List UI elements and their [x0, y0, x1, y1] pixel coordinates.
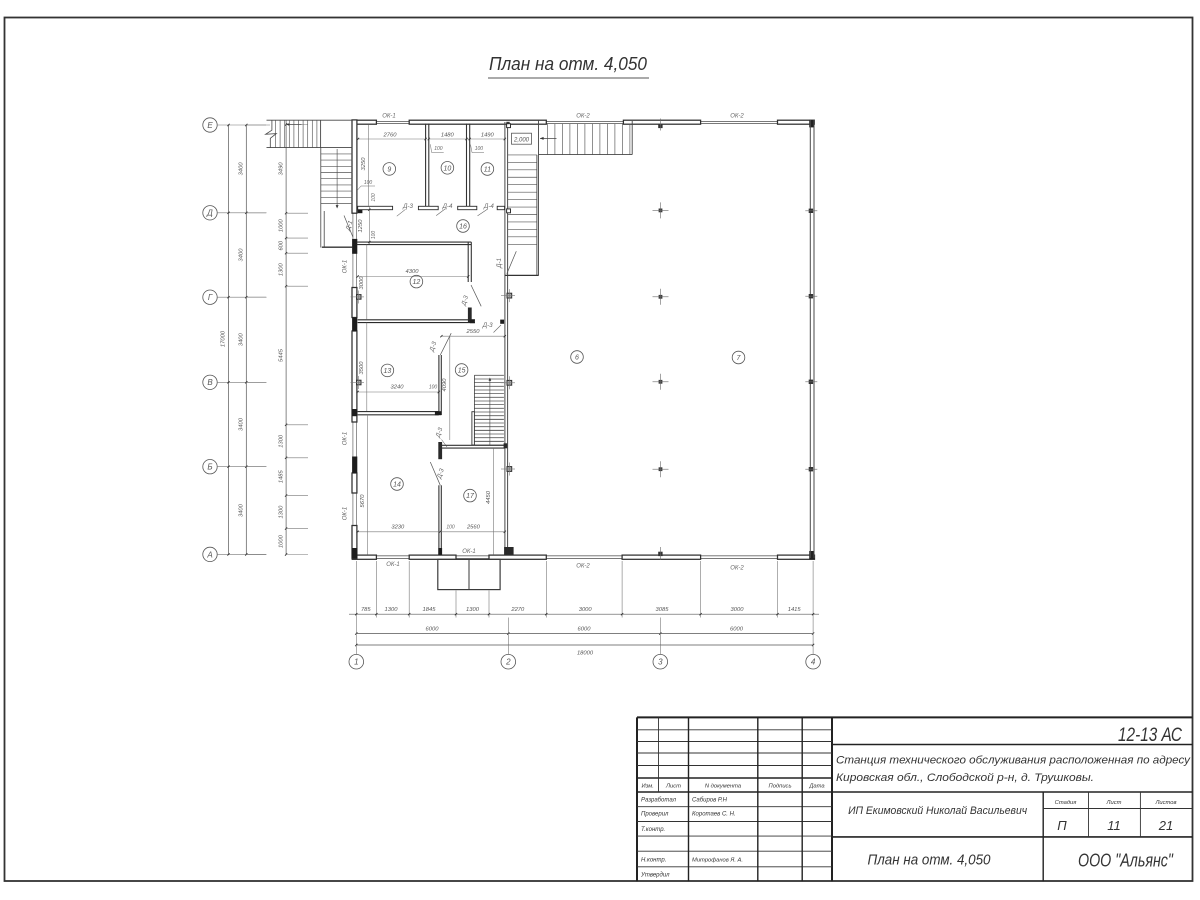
svg-text:ООО "Альянс": ООО "Альянс" [1078, 851, 1174, 871]
svg-text:12: 12 [413, 279, 421, 286]
svg-text:Стадия: Стадия [1055, 800, 1077, 806]
svg-text:1490: 1490 [481, 133, 495, 139]
svg-text:5445: 5445 [278, 348, 284, 362]
svg-text:Кировская обл., Слободской р-н: Кировская обл., Слободской р-н, д. Трушк… [836, 772, 1094, 784]
svg-text:6: 6 [575, 355, 579, 362]
svg-text:100: 100 [364, 180, 373, 186]
svg-text:Н.контр.: Н.контр. [641, 858, 666, 864]
svg-text:4300: 4300 [406, 269, 420, 275]
svg-text:1300: 1300 [278, 262, 284, 276]
svg-text:Б: Б [207, 463, 212, 472]
svg-text:18000: 18000 [577, 651, 594, 657]
svg-text:1415: 1415 [788, 607, 802, 613]
svg-text:1300: 1300 [385, 607, 399, 613]
svg-text:100: 100 [434, 146, 443, 152]
svg-text:3490: 3490 [278, 162, 284, 176]
svg-text:3000: 3000 [731, 607, 745, 613]
svg-text:3400: 3400 [239, 162, 245, 176]
svg-text:Д-1: Д-1 [496, 258, 503, 269]
svg-text:Изм.: Изм. [642, 784, 654, 790]
svg-text:Г: Г [208, 293, 213, 302]
svg-text:100: 100 [446, 525, 455, 531]
svg-text:3: 3 [658, 658, 663, 667]
svg-text:Т.контр.: Т.контр. [641, 827, 665, 833]
svg-text:ОК-2: ОК-2 [576, 564, 590, 570]
svg-text:11: 11 [1107, 818, 1121, 833]
svg-text:1485: 1485 [278, 469, 284, 483]
svg-text:100: 100 [371, 193, 377, 202]
svg-text:1000: 1000 [278, 534, 284, 548]
svg-text:12-13 АС: 12-13 АС [1118, 725, 1182, 746]
svg-text:ОК-1: ОК-1 [342, 260, 348, 274]
svg-text:Листов: Листов [1154, 800, 1176, 806]
svg-text:100: 100 [429, 385, 438, 391]
svg-text:1300: 1300 [278, 434, 284, 448]
svg-text:Разработал: Разработал [641, 797, 677, 803]
svg-text:Проверил: Проверил [641, 811, 669, 817]
svg-text:Д-4: Д-4 [442, 203, 453, 210]
svg-text:3400: 3400 [239, 503, 245, 517]
svg-text:Утвердил: Утвердил [640, 872, 670, 878]
svg-text:15: 15 [458, 368, 466, 375]
svg-text:3230: 3230 [391, 525, 405, 531]
svg-text:ОК-1: ОК-1 [342, 432, 348, 446]
svg-text:Е: Е [207, 121, 213, 130]
svg-text:N документа: N документа [705, 784, 742, 790]
svg-text:6000: 6000 [578, 626, 592, 632]
svg-text:1480: 1480 [441, 133, 455, 139]
svg-text:Д: Д [206, 209, 213, 218]
svg-text:14: 14 [393, 482, 401, 489]
svg-text:3240: 3240 [391, 385, 405, 391]
svg-text:1: 1 [354, 658, 358, 667]
svg-text:4450: 4450 [486, 490, 492, 504]
svg-text:11: 11 [484, 167, 491, 174]
svg-text:Митрофанов Я. А.: Митрофанов Я. А. [692, 858, 743, 864]
svg-text:5670: 5670 [360, 494, 366, 508]
svg-text:3500: 3500 [359, 361, 365, 375]
svg-text:В: В [207, 378, 213, 387]
svg-text:3400: 3400 [239, 248, 245, 262]
svg-text:3400: 3400 [239, 332, 245, 346]
svg-text:3000: 3000 [579, 607, 593, 613]
svg-text:2560: 2560 [466, 525, 481, 531]
svg-text:4090: 4090 [442, 378, 448, 392]
svg-text:Д-3: Д-3 [482, 322, 493, 329]
svg-text:3250: 3250 [361, 157, 367, 171]
svg-text:600: 600 [278, 240, 284, 250]
svg-text:П: П [1057, 818, 1067, 833]
svg-text:ОК-1: ОК-1 [342, 507, 348, 521]
svg-text:Д-3: Д-3 [402, 203, 413, 210]
svg-text:13: 13 [384, 368, 392, 375]
svg-text:Д-4: Д-4 [483, 203, 494, 210]
svg-text:Дата: Дата [808, 784, 825, 790]
svg-text:17000: 17000 [221, 330, 227, 347]
svg-text:План на отм. 4,050: План на отм. 4,050 [489, 53, 648, 74]
svg-text:ОК-2: ОК-2 [576, 113, 590, 119]
svg-text:Коротаев С. Н.: Коротаев С. Н. [692, 811, 736, 817]
svg-text:Станция технического обслужива: Станция технического обслуживания распол… [836, 755, 1191, 767]
svg-text:785: 785 [361, 607, 371, 613]
svg-text:Подпись: Подпись [769, 784, 792, 790]
svg-text:6000: 6000 [730, 626, 744, 632]
svg-text:ИП Екимовский Николай Васильев: ИП Екимовский Николай Васильевич [848, 805, 1027, 817]
svg-text:16: 16 [459, 224, 467, 231]
svg-text:3000: 3000 [359, 276, 365, 290]
svg-text:1845: 1845 [423, 607, 437, 613]
svg-text:1300: 1300 [278, 505, 284, 519]
svg-text:ОК-2: ОК-2 [730, 566, 744, 572]
svg-text:А: А [206, 550, 212, 559]
svg-text:План на отм. 4,050: План на отм. 4,050 [868, 853, 991, 869]
svg-text:2,000: 2,000 [513, 138, 530, 144]
svg-text:Лист: Лист [1106, 800, 1122, 806]
svg-text:ОК-1: ОК-1 [386, 562, 400, 568]
svg-text:17: 17 [466, 493, 475, 500]
svg-text:2270: 2270 [510, 607, 525, 613]
svg-text:3400: 3400 [239, 417, 245, 431]
svg-text:21: 21 [1158, 818, 1173, 833]
svg-text:2550: 2550 [466, 329, 481, 335]
svg-text:Сабиров Р.Н: Сабиров Р.Н [692, 797, 728, 803]
svg-text:2760: 2760 [383, 133, 398, 139]
svg-text:1000: 1000 [278, 218, 284, 232]
svg-text:1300: 1300 [466, 607, 480, 613]
svg-text:ОК-2: ОК-2 [730, 113, 744, 119]
svg-text:1250: 1250 [358, 219, 364, 233]
svg-text:6000: 6000 [426, 626, 440, 632]
svg-text:Лист: Лист [665, 784, 681, 790]
svg-text:10: 10 [444, 165, 452, 172]
svg-text:2: 2 [505, 658, 511, 667]
svg-text:ОК-1: ОК-1 [462, 549, 476, 555]
svg-text:4: 4 [811, 658, 816, 667]
svg-text:ОК-1: ОК-1 [382, 113, 396, 119]
svg-text:100: 100 [371, 231, 377, 240]
svg-text:3085: 3085 [656, 607, 670, 613]
svg-text:9: 9 [387, 166, 391, 173]
svg-text:100: 100 [475, 146, 484, 152]
